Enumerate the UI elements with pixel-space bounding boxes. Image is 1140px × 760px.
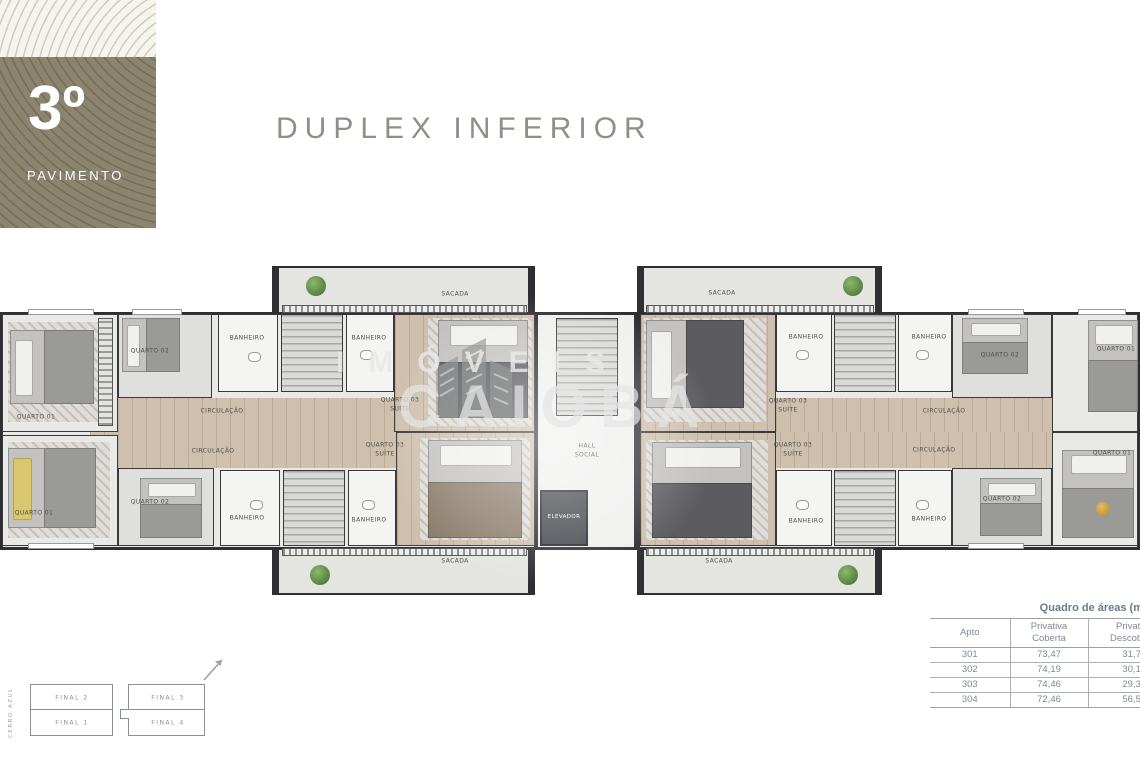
room-label-suite: SUÍTE <box>783 452 802 459</box>
col-header-line: Coberta <box>1032 633 1066 644</box>
apto-cell: 302 <box>930 662 1010 677</box>
col-header-privativa-descoberta: Privativa Descoberta <box>1088 619 1140 648</box>
col-header-line: Descoberta <box>1110 633 1140 644</box>
plant <box>1096 502 1110 516</box>
descoberta-cell: 31,70 <box>1088 647 1140 662</box>
room-label-suite: SUÍTE <box>375 452 394 459</box>
apto-cell: 301 <box>930 647 1010 662</box>
table-row: 304 72,46 56,55 <box>930 692 1140 707</box>
toilet <box>248 352 261 362</box>
wardrobe <box>98 318 113 426</box>
window <box>28 543 94 549</box>
toilet <box>916 500 929 510</box>
room-label-elevador: ELEVADOR <box>548 514 581 520</box>
room-label-circulacao: CIRCULAÇÃO <box>913 448 956 455</box>
window <box>1078 309 1126 315</box>
bed <box>122 318 180 372</box>
railing <box>646 548 874 556</box>
plant <box>310 565 330 585</box>
room-label-sacada: SACADA <box>708 291 735 298</box>
apto-cell: 304 <box>930 692 1010 707</box>
room-label-circulacao: CIRCULAÇÃO <box>192 449 235 456</box>
room-label-quarto03: QUARTO 03 <box>769 399 807 406</box>
room-label-quarto01: QUARTO 01 <box>1097 347 1135 354</box>
toilet <box>796 500 809 510</box>
coberta-cell: 72,46 <box>1010 692 1088 707</box>
descoberta-cell: 56,55 <box>1088 692 1140 707</box>
descoberta-cell: 29,32 <box>1088 677 1140 692</box>
room-label-circulacao: CIRCULAÇÃO <box>201 409 244 416</box>
room-label-suite: SUÍTE <box>778 408 797 415</box>
corridor-top-left <box>118 398 394 432</box>
room-label-suite: SUÍTE <box>390 407 409 414</box>
corridor-top-right <box>776 398 1052 432</box>
room-label-quarto02: QUARTO 02 <box>983 497 1021 504</box>
room-label-sacada: SACADA <box>441 292 468 299</box>
bed <box>646 320 744 408</box>
toilet <box>796 350 809 360</box>
area-table-grid: Apto Privativa Coberta Privativa Descobe… <box>930 618 1140 708</box>
room-label-hall: HALL <box>579 444 596 451</box>
staircase <box>834 314 896 392</box>
staircase <box>281 314 343 392</box>
plant <box>306 276 326 296</box>
coberta-cell: 73,47 <box>1010 647 1088 662</box>
room-label-banheiro: BANHEIRO <box>789 519 824 526</box>
toilet <box>362 500 375 510</box>
room-label-sacada: SACADA <box>705 559 732 566</box>
room-label-banheiro: BANHEIRO <box>230 336 265 343</box>
table-row: 303 74,46 29,32 <box>930 677 1140 692</box>
col-header-line: Privativa <box>1116 621 1140 632</box>
room-label-quarto03: QUARTO 03 <box>366 443 404 450</box>
room-label-quarto01: QUARTO 01 <box>15 511 53 518</box>
col-header-line: Apto <box>960 627 980 638</box>
key-plan-final-1: FINAL 1 <box>55 720 88 727</box>
north-arrow-icon <box>198 652 230 684</box>
room-label-banheiro: BANHEIRO <box>912 335 947 342</box>
key-plan-final-3: FINAL 3 <box>151 695 184 702</box>
window <box>132 309 182 315</box>
room-label-quarto01: QUARTO 01 <box>17 415 55 422</box>
room-label-quarto02: QUARTO 02 <box>131 349 169 356</box>
col-header-privativa-coberta: Privativa Coberta <box>1010 619 1088 648</box>
bed <box>140 478 202 538</box>
table-row: 302 74,19 30,17 <box>930 662 1140 677</box>
room-label-quarto03: QUARTO 03 <box>381 398 419 405</box>
railing <box>282 305 527 313</box>
room-label-banheiro: BANHEIRO <box>789 335 824 342</box>
room-label-sacada: SACADA <box>441 559 468 566</box>
table-row: 301 73,47 31,70 <box>930 647 1140 662</box>
col-header-line: Privativa <box>1031 621 1067 632</box>
room-label-quarto03: QUARTO 03 <box>774 443 812 450</box>
toilet <box>916 350 929 360</box>
room-label-circulacao: CIRCULAÇÃO <box>923 409 966 416</box>
street-label: CERRO AZUL <box>8 684 14 738</box>
key-plan-final-2: FINAL 2 <box>55 695 88 702</box>
railing <box>282 548 527 556</box>
coberta-cell: 74,46 <box>1010 677 1088 692</box>
area-table-title: Quadro de áreas (m²) <box>930 602 1140 614</box>
apto-cell: 303 <box>930 677 1010 692</box>
bed <box>1062 450 1134 538</box>
room-label-banheiro: BANHEIRO <box>352 518 387 525</box>
key-plan-final-4: FINAL 4 <box>151 720 184 727</box>
key-plan-notch <box>120 709 129 719</box>
bed <box>438 320 528 418</box>
room-label-banheiro: BANHEIRO <box>912 517 947 524</box>
railing <box>646 305 874 313</box>
room-label-banheiro: BANHEIRO <box>230 516 265 523</box>
bed <box>428 440 522 538</box>
room-label-hall-social: SOCIAL <box>575 453 599 460</box>
room-label-quarto02: QUARTO 02 <box>131 500 169 507</box>
descoberta-cell: 30,17 <box>1088 662 1140 677</box>
staircase <box>834 470 896 546</box>
staircase <box>283 470 345 546</box>
plant <box>843 276 863 296</box>
floor-plan-sheet: { "header": { "floor_number": "3º", "flo… <box>0 0 1140 760</box>
plant <box>838 565 858 585</box>
toilet <box>360 350 373 360</box>
bed <box>652 442 752 538</box>
coberta-cell: 74,19 <box>1010 662 1088 677</box>
window <box>28 309 94 315</box>
bed <box>962 318 1028 374</box>
room-label-banheiro: BANHEIRO <box>352 336 387 343</box>
window <box>968 309 1024 315</box>
bed <box>980 478 1042 536</box>
room-label-quarto01: QUARTO 01 <box>1093 451 1131 458</box>
area-table: Quadro de áreas (m²) Apto Privativa Cobe… <box>930 602 1140 708</box>
room-label-quarto02: QUARTO 02 <box>981 353 1019 360</box>
col-header-apto: Apto <box>930 619 1010 648</box>
common-staircase <box>556 318 618 416</box>
toilet <box>250 500 263 510</box>
bed <box>10 330 94 404</box>
bed <box>1088 320 1138 412</box>
window <box>968 543 1024 549</box>
